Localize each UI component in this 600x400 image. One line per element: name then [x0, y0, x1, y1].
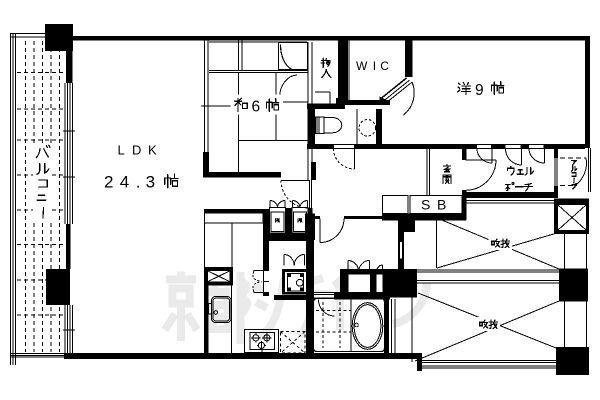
svg-text:D: D — [132, 143, 141, 158]
svg-text:2: 2 — [104, 173, 113, 192]
svg-text:4: 4 — [120, 173, 129, 192]
svg-text:B: B — [437, 196, 446, 212]
svg-text:C: C — [380, 59, 389, 73]
svg-text:6: 6 — [252, 99, 261, 116]
svg-text:K: K — [148, 143, 157, 158]
svg-text:9: 9 — [475, 82, 484, 99]
svg-text:3: 3 — [146, 173, 155, 192]
svg-text:I: I — [373, 59, 376, 73]
svg-text:W: W — [356, 59, 368, 73]
svg-text:.: . — [136, 173, 141, 192]
svg-text:L: L — [118, 143, 125, 158]
svg-text:S: S — [421, 196, 430, 212]
